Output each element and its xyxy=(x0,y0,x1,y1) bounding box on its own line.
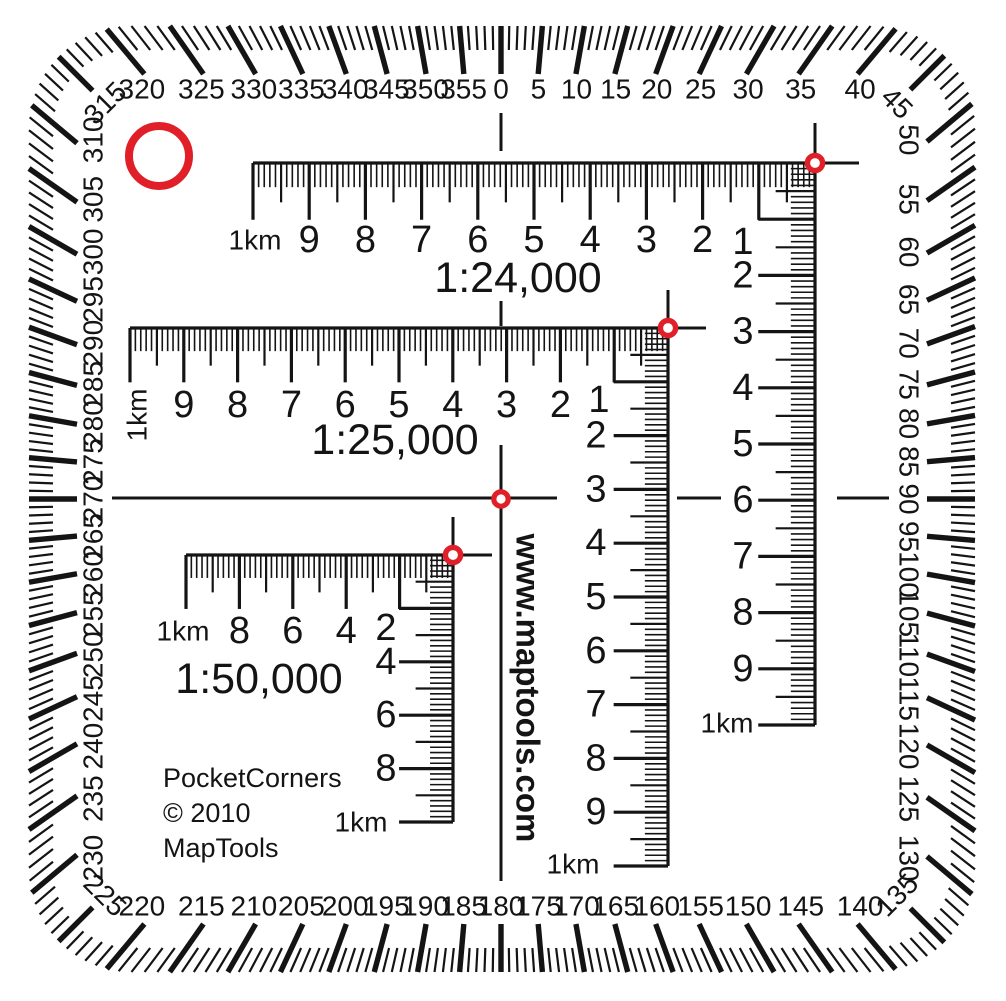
degree-tick xyxy=(538,924,542,972)
degree-tick xyxy=(525,948,526,972)
degree-tick xyxy=(392,948,398,972)
degree-tick xyxy=(460,924,464,972)
ruler-scale-title: 1:50,000 xyxy=(175,655,342,703)
degree-tick xyxy=(951,398,975,403)
degree-tick xyxy=(29,364,53,371)
degree-tick xyxy=(900,943,917,962)
degree-tick xyxy=(572,26,576,50)
degree-tick xyxy=(29,259,53,271)
degree-tick xyxy=(29,515,53,516)
ruler-h-label: 7 xyxy=(281,384,302,426)
degree-tick xyxy=(329,924,346,972)
ruler-v-label: 9 xyxy=(732,648,753,690)
degree-tick xyxy=(951,336,975,344)
hanging-hole xyxy=(129,126,189,186)
degree-tick xyxy=(951,595,975,600)
degree-tick xyxy=(356,948,363,972)
degree-label: 205 xyxy=(278,891,325,922)
ruler-scale-title: 1:25,000 xyxy=(311,416,478,464)
degree-label: 105 xyxy=(894,590,925,637)
degree-tick xyxy=(435,948,438,972)
degree-label: 295 xyxy=(78,276,109,323)
degree-label: 120 xyxy=(894,723,925,770)
ruler-v-label: 5 xyxy=(585,576,606,618)
ruler-v-label: 7 xyxy=(585,684,606,726)
degree-tick xyxy=(576,924,584,972)
degree-label: 50 xyxy=(894,124,925,155)
degree-tick xyxy=(29,594,53,599)
degree-tick xyxy=(613,26,619,50)
degree-label: 65 xyxy=(894,284,925,315)
degree-label: 115 xyxy=(894,676,925,721)
degree-tick xyxy=(329,26,346,74)
ruler-corner-label: 1 xyxy=(732,221,753,263)
pocket-corners-tool: 0510152025303540455055606570758085909510… xyxy=(0,0,1006,1001)
degree-tick xyxy=(280,26,302,74)
degree-label: 195 xyxy=(363,891,410,922)
degree-label: 85 xyxy=(894,446,925,477)
degree-label: 140 xyxy=(837,891,884,922)
degree-tick xyxy=(951,424,975,428)
degree-tick xyxy=(951,307,975,317)
ruler-h-label: 8 xyxy=(355,219,376,261)
degree-tick xyxy=(76,937,93,955)
degree-tick xyxy=(29,689,53,699)
degree-tick xyxy=(548,26,551,50)
degree-tick xyxy=(29,611,53,617)
degree-tick xyxy=(319,948,328,972)
degree-tick xyxy=(951,298,975,308)
ruler-h-km-label: 1km xyxy=(122,389,153,442)
degree-tick xyxy=(940,909,958,926)
degree-label: 60 xyxy=(894,236,925,267)
ruler-h-km-label: 1km xyxy=(229,225,282,256)
degree-tick xyxy=(692,26,702,50)
degree-tick xyxy=(945,82,964,99)
degree-tick xyxy=(409,26,414,50)
degree-tick xyxy=(443,948,446,972)
degree-tick xyxy=(338,26,346,50)
ruler-v-km-label: 1km xyxy=(701,708,754,739)
degree-tick xyxy=(484,26,485,50)
degree-tick xyxy=(29,570,53,574)
degree-tick xyxy=(596,948,601,972)
degree-tick xyxy=(476,948,477,972)
degree-tick xyxy=(605,26,611,50)
degree-tick xyxy=(647,26,655,50)
degree-tick xyxy=(951,611,975,617)
ruler-v-label: 5 xyxy=(732,423,753,465)
degree-tick xyxy=(29,279,77,301)
degree-tick xyxy=(556,26,559,50)
degree-tick xyxy=(300,948,310,972)
ruler-h-label: 4 xyxy=(336,610,357,652)
degree-tick xyxy=(29,627,53,634)
degree-tick xyxy=(29,727,53,739)
degree-tick xyxy=(451,948,454,972)
ruler-v-label: 8 xyxy=(732,592,753,634)
degree-tick xyxy=(310,948,320,972)
degree-tick xyxy=(951,586,975,591)
degree-label: 90 xyxy=(894,483,925,514)
degree-label: 210 xyxy=(231,891,278,922)
degree-tick xyxy=(572,948,576,972)
degree-tick xyxy=(951,728,975,740)
degree-tick xyxy=(951,603,975,609)
degree-tick xyxy=(29,653,53,661)
degree-tick xyxy=(588,948,593,972)
degree-tick xyxy=(418,924,426,972)
degree-tick xyxy=(418,26,426,74)
degree-tick xyxy=(532,26,534,50)
degree-tick xyxy=(517,948,518,972)
degree-label: 20 xyxy=(641,74,672,105)
ruler-h-label: 8 xyxy=(229,610,250,652)
degree-tick xyxy=(40,84,59,101)
degree-tick xyxy=(699,26,721,74)
degree-tick xyxy=(951,466,975,468)
ruler-v-km-label: 1km xyxy=(547,849,600,880)
degree-tick xyxy=(699,924,721,972)
degree-tick xyxy=(630,26,637,50)
degree-tick xyxy=(76,43,93,61)
degree-tick xyxy=(319,26,328,50)
degree-tick xyxy=(310,26,320,50)
degree-tick xyxy=(910,908,944,942)
degree-tick xyxy=(927,574,975,582)
degree-tick xyxy=(656,924,673,972)
degree-tick xyxy=(400,948,405,972)
degree-tick xyxy=(29,680,53,690)
degree-label: 155 xyxy=(677,891,724,922)
degree-tick xyxy=(656,26,664,50)
degree-tick xyxy=(443,26,446,50)
degree-label: 215 xyxy=(178,891,225,922)
degree-tick xyxy=(927,654,975,671)
degree-tick xyxy=(576,26,584,74)
degree-tick xyxy=(484,948,485,972)
ruler-v-label: 8 xyxy=(375,748,396,790)
degree-tick xyxy=(927,415,975,423)
degree-tick xyxy=(951,681,975,691)
degree-tick xyxy=(673,948,682,972)
degree-tick xyxy=(927,458,975,462)
ruler-h-label: 8 xyxy=(227,384,248,426)
degree-tick xyxy=(392,26,398,50)
degree-tick xyxy=(630,948,637,972)
degree-tick xyxy=(280,924,302,972)
degree-label: 235 xyxy=(78,775,109,822)
center-point xyxy=(494,492,508,506)
degree-tick xyxy=(29,458,77,462)
degree-label: 340 xyxy=(322,74,369,105)
degree-tick xyxy=(59,907,93,941)
ruler-h-label: 2 xyxy=(550,384,571,426)
degree-tick xyxy=(29,554,53,557)
degree-tick xyxy=(910,56,944,90)
degree-tick xyxy=(656,26,673,74)
degree-tick xyxy=(29,636,53,643)
degree-tick xyxy=(29,574,77,582)
degree-tick xyxy=(951,523,975,524)
degree-tick xyxy=(647,948,655,972)
degree-label: 145 xyxy=(777,891,824,922)
degree-tick xyxy=(347,948,355,972)
degree-tick xyxy=(468,948,470,972)
degree-tick xyxy=(951,390,975,396)
degree-tick xyxy=(673,26,682,50)
degree-tick xyxy=(638,948,645,972)
degree-tick xyxy=(951,637,975,644)
degree-tick xyxy=(951,363,975,370)
degree-tick xyxy=(29,327,77,344)
degree-tick xyxy=(426,26,430,50)
ruler-h-km-label: 1km xyxy=(157,616,210,647)
degree-tick xyxy=(682,26,692,50)
degree-tick xyxy=(29,381,53,387)
degree-tick xyxy=(347,26,355,50)
degree-tick xyxy=(910,938,927,956)
credits-line: © 2010 xyxy=(163,798,250,828)
degree-tick xyxy=(951,354,975,361)
degree-tick xyxy=(692,948,702,972)
ruler-v-label: 6 xyxy=(585,630,606,672)
ruler-v-label: 6 xyxy=(375,694,396,736)
degree-tick xyxy=(682,948,692,972)
credits-line: PocketCorners xyxy=(163,763,342,793)
degree-tick xyxy=(605,948,611,972)
ruler-v-label: 3 xyxy=(585,468,606,510)
corner-zero-point xyxy=(807,155,822,170)
degree-tick xyxy=(927,698,975,720)
degree-tick xyxy=(951,247,975,260)
degree-label: 25 xyxy=(685,74,716,105)
degree-tick xyxy=(356,26,363,50)
ruler-h-label: 9 xyxy=(299,219,320,261)
degree-tick xyxy=(564,26,567,50)
degree-tick xyxy=(29,546,53,549)
degree-tick xyxy=(29,522,53,523)
ruler-v-label: 7 xyxy=(732,535,753,577)
degree-tick xyxy=(476,26,477,50)
degree-tick xyxy=(338,948,346,972)
degree-tick xyxy=(250,948,263,972)
degree-label: 110 xyxy=(894,632,925,677)
degree-label: 160 xyxy=(633,891,680,922)
degree-tick xyxy=(29,697,77,719)
degree-tick xyxy=(29,483,53,484)
degree-tick xyxy=(29,536,77,540)
degree-label: 335 xyxy=(278,74,325,105)
degree-tick xyxy=(250,26,263,50)
degree-tick xyxy=(29,474,53,475)
degree-tick xyxy=(85,942,102,961)
degree-label: 330 xyxy=(231,74,278,105)
degree-label: 245 xyxy=(78,675,109,722)
degree-tick xyxy=(656,948,664,972)
degree-tick xyxy=(59,57,93,91)
degree-tick xyxy=(29,416,77,424)
ruler-v-label: 6 xyxy=(732,479,753,521)
degree-tick xyxy=(435,26,438,50)
degree-label: 5 xyxy=(531,74,547,105)
degree-tick xyxy=(951,441,975,444)
ruler-h-label: 6 xyxy=(282,610,303,652)
degree-tick xyxy=(365,948,372,972)
degree-tick xyxy=(29,433,53,436)
degree-tick xyxy=(29,653,77,670)
degree-tick xyxy=(460,26,464,74)
degree-label: 250 xyxy=(78,631,109,678)
degree-label: 30 xyxy=(733,74,764,105)
website-url: www.maptools.com xyxy=(510,533,547,843)
degree-label: 290 xyxy=(78,320,109,367)
ruler-v-km-label: 1km xyxy=(335,807,388,838)
degree-tick xyxy=(451,26,454,50)
degree-label: 150 xyxy=(725,891,772,922)
degree-tick xyxy=(409,948,414,972)
degree-tick xyxy=(638,26,645,50)
corner-zero-point xyxy=(445,547,460,562)
degree-tick xyxy=(260,948,272,972)
degree-tick xyxy=(29,308,53,318)
degree-label: 10 xyxy=(561,74,592,105)
credits-line: MapTools xyxy=(163,833,279,863)
degree-tick xyxy=(29,441,53,444)
degree-label: 230 xyxy=(78,835,109,882)
degree-tick xyxy=(740,948,753,972)
degree-tick xyxy=(517,26,518,50)
degree-label: 125 xyxy=(894,775,925,822)
degree-tick xyxy=(383,26,389,50)
degree-tick xyxy=(29,346,53,354)
ruler-corner-label: 1 xyxy=(588,379,609,421)
ruler-h-label: 3 xyxy=(496,384,517,426)
degree-tick xyxy=(300,26,310,50)
degree-tick xyxy=(927,278,975,300)
ruler-v-label: 9 xyxy=(585,791,606,833)
ruler-h-label: 3 xyxy=(636,219,657,261)
degree-tick xyxy=(613,948,619,972)
degree-tick xyxy=(538,26,542,74)
degree-tick xyxy=(426,948,430,972)
degree-tick xyxy=(400,26,405,50)
degree-tick xyxy=(940,73,958,90)
degree-tick xyxy=(40,898,59,915)
degree-tick xyxy=(951,738,975,751)
degree-tick xyxy=(596,26,601,50)
degree-label: 325 xyxy=(178,74,225,105)
degree-tick xyxy=(45,74,63,91)
degree-label: 95 xyxy=(894,521,925,552)
degree-tick xyxy=(383,948,389,972)
degree-tick xyxy=(951,515,975,516)
degree-tick xyxy=(951,317,975,326)
degree-tick xyxy=(45,907,63,924)
degree-tick xyxy=(945,899,964,916)
degree-tick xyxy=(951,672,975,681)
degree-label: 285 xyxy=(78,361,109,408)
degree-tick xyxy=(951,690,975,700)
credits: PocketCorners© 2010MapTools xyxy=(163,763,342,863)
degree-tick xyxy=(951,654,975,662)
ruler-v-label: 4 xyxy=(585,522,606,564)
degree-tick xyxy=(910,42,927,60)
degree-tick xyxy=(730,948,742,972)
degree-label: 0 xyxy=(493,74,509,105)
degree-tick xyxy=(29,336,53,344)
degree-tick xyxy=(951,257,975,269)
degree-tick xyxy=(730,26,742,50)
degree-tick xyxy=(29,645,53,653)
degree-tick xyxy=(29,562,53,565)
degree-tick xyxy=(951,562,975,565)
degree-tick xyxy=(564,948,567,972)
degree-tick xyxy=(951,482,975,483)
degree-tick xyxy=(740,26,753,50)
degree-label: 80 xyxy=(894,408,925,439)
degree-label: 320 xyxy=(119,74,166,105)
degree-label: 55 xyxy=(894,184,925,215)
degree-tick xyxy=(532,948,534,972)
ruler-scale-title: 1:24,000 xyxy=(434,254,601,302)
degree-tick xyxy=(951,546,975,549)
degree-label: 300 xyxy=(78,229,109,276)
degree-tick xyxy=(468,26,470,50)
degree-tick xyxy=(951,449,975,452)
degree-tick xyxy=(29,449,53,452)
degree-label: 200 xyxy=(322,891,369,922)
degree-tick xyxy=(29,248,53,261)
degree-tick xyxy=(29,355,53,362)
degree-label: 70 xyxy=(894,328,925,359)
degree-tick xyxy=(951,474,975,475)
degree-tick xyxy=(29,299,53,309)
ruler-v-label: 8 xyxy=(585,737,606,779)
degree-tick xyxy=(951,645,975,653)
degree-tick xyxy=(29,586,53,591)
degree-tick xyxy=(29,390,53,396)
degree-tick xyxy=(588,26,593,50)
degree-tick xyxy=(927,536,975,540)
degree-label: 75 xyxy=(894,369,925,400)
ruler-h-label: 2 xyxy=(692,219,713,261)
degree-label: 15 xyxy=(600,74,631,105)
degree-tick xyxy=(548,948,551,972)
degree-tick xyxy=(525,26,526,50)
ruler-v-label: 3 xyxy=(732,311,753,353)
degree-tick xyxy=(29,407,53,412)
degree-tick xyxy=(85,37,102,56)
degree-tick xyxy=(29,424,53,428)
degree-tick xyxy=(951,432,975,435)
ruler-h-label: 7 xyxy=(411,219,432,261)
protractor-ruler-graphic: 0510152025303540455055606570758085909510… xyxy=(0,0,1006,1001)
degree-label: 240 xyxy=(78,723,109,770)
degree-tick xyxy=(29,399,53,404)
degree-tick xyxy=(900,37,917,56)
ruler-corner-label: 2 xyxy=(375,607,396,649)
degree-label: 40 xyxy=(845,74,876,105)
degree-tick xyxy=(951,345,975,353)
degree-tick xyxy=(29,466,53,468)
degree-label: 305 xyxy=(78,176,109,223)
degree-tick xyxy=(951,628,975,635)
corner-zero-point xyxy=(660,320,675,335)
ruler-h-label: 9 xyxy=(173,384,194,426)
degree-tick xyxy=(951,570,975,574)
degree-label: 355 xyxy=(440,74,487,105)
